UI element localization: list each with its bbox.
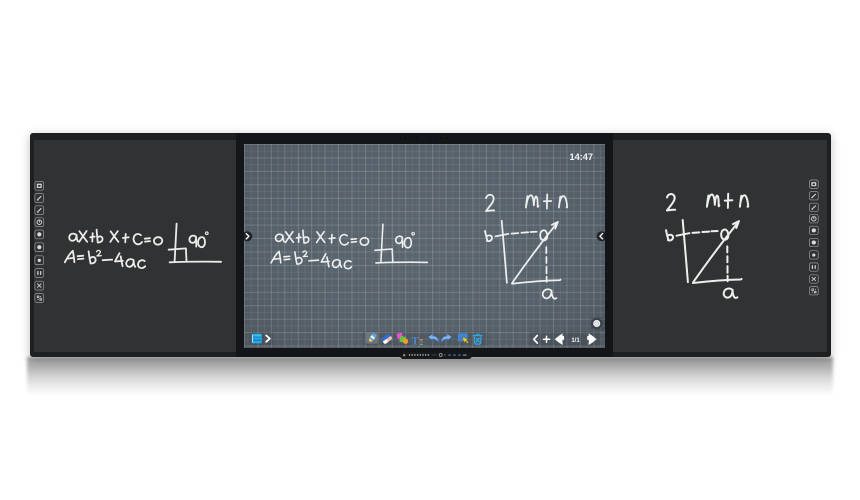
svg-text:1/1: 1/1: [571, 338, 580, 344]
svg-text:14:47: 14:47: [570, 152, 594, 162]
svg-text:T: T: [411, 335, 419, 347]
